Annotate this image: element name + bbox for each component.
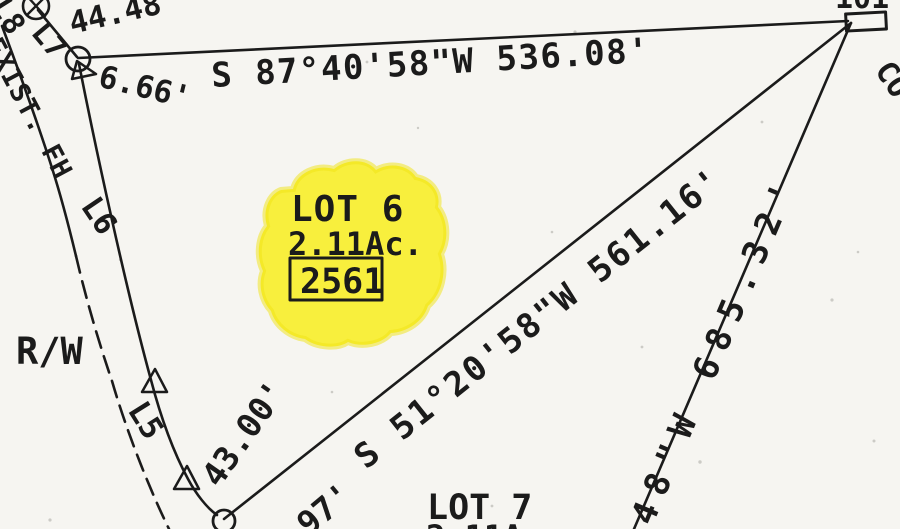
road-frontage-boundary-line bbox=[79, 64, 217, 515]
lot6-name-label: LOT 6 bbox=[291, 189, 404, 230]
curve-l5-label: L5 bbox=[120, 395, 170, 446]
plat-map-scan: LOT 6 2.11Ac. 2561 LOT 7 2.11Ac. S 87°40… bbox=[0, 0, 900, 529]
distance-6-66-label: 6.66' bbox=[95, 59, 194, 117]
corner-co-label-partial: CO bbox=[867, 55, 900, 105]
lot7-area-label-partial: 2.11Ac. bbox=[426, 518, 561, 529]
corner-number-label-partial: 101 bbox=[835, 0, 889, 16]
curve-l6-label: L6 bbox=[73, 190, 124, 241]
distance-97-label-partial: 97' bbox=[289, 475, 360, 529]
lot6-number-label: 2561 bbox=[300, 262, 384, 302]
right-of-way-label: R/W bbox=[16, 330, 84, 373]
plat-map-canvas: LOT 6 2.11Ac. 2561 LOT 7 2.11Ac. S 87°40… bbox=[0, 0, 900, 529]
distance-44-48-label: 44.48 bbox=[66, 0, 165, 42]
